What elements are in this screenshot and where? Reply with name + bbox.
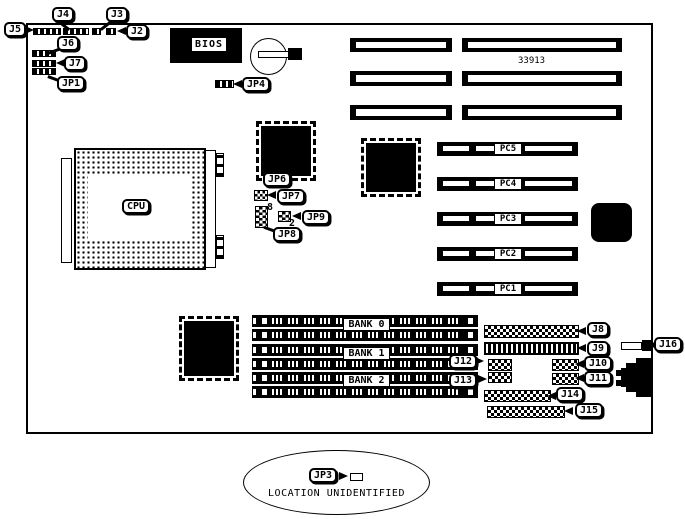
jumper-jp7 — [254, 190, 268, 201]
pci-slot-pc2: PC2 — [437, 247, 578, 261]
label-j7: J7 — [64, 56, 86, 71]
pci-slot-pc3: PC3 — [437, 212, 578, 226]
label-jp8: JP8 — [273, 227, 301, 242]
pointer-jp3 — [339, 472, 348, 480]
label-jp6: JP6 — [263, 172, 291, 187]
pin-header-j8 — [484, 325, 579, 338]
chip-qfp-2 — [366, 143, 416, 192]
bank1-label: BANK 1 — [343, 347, 390, 360]
bank0-label: BANK 0 — [343, 318, 390, 331]
chip-plcc — [591, 203, 632, 242]
pci-slot-pc1: PC1 — [437, 282, 578, 296]
label-jp4: JP4 — [242, 77, 270, 92]
bios-chip: BIOS — [170, 28, 242, 63]
pci-slot-pc5-label: PC5 — [494, 143, 522, 155]
battery-strap — [258, 51, 290, 58]
label-j2: J2 — [126, 24, 148, 39]
board-part-number: 33913 — [518, 56, 545, 66]
pci-slot-pc5: PC5 — [437, 142, 578, 156]
isa-slot-2-right — [462, 71, 622, 86]
pin-header-j5 — [33, 28, 61, 35]
pointer-jp7 — [267, 191, 276, 199]
connector-j16 — [621, 342, 642, 350]
label-j6: J6 — [57, 36, 79, 51]
label-j5: J5 — [4, 22, 26, 37]
keyboard-connector-step — [626, 363, 638, 392]
jp8-pin8-number: 8 — [267, 203, 273, 213]
pointer-j9 — [577, 344, 586, 352]
label-j4: J4 — [52, 7, 74, 22]
pointer-j10 — [575, 360, 584, 368]
label-jp7: JP7 — [277, 189, 305, 204]
chip-qfp-3 — [184, 321, 234, 376]
jumper-jp3 — [350, 473, 363, 481]
label-j14: J14 — [556, 387, 584, 402]
isa-slot-1-left — [350, 38, 452, 52]
location-unidentified-text: LOCATION UNIDENTIFIED — [253, 488, 420, 499]
isa-slot-2-left — [350, 71, 452, 86]
label-j9: J9 — [587, 341, 609, 356]
label-j8: J8 — [587, 322, 609, 337]
label-jp1: JP1 — [57, 76, 85, 91]
pci-slot-pc3-label: PC3 — [494, 213, 522, 225]
cpu-bracket-bottom — [216, 235, 224, 259]
label-j16: J16 — [654, 337, 682, 352]
label-jp9: JP9 — [302, 210, 330, 225]
pin-header-j2 — [106, 28, 116, 35]
cpu-bracket-top — [216, 153, 224, 177]
cpu-label: CPU — [122, 199, 150, 214]
chip-qfp-1 — [261, 126, 311, 176]
pin-header-j12 — [488, 359, 512, 371]
label-j10: J10 — [584, 356, 612, 371]
label-j13: J13 — [449, 373, 477, 388]
isa-slot-3-right — [462, 105, 622, 120]
pin-header-jp1 — [32, 68, 56, 75]
keyboard-connector-pin-top — [616, 370, 622, 376]
cpu-side-bar-left — [61, 158, 72, 263]
pci-slot-pc2-label: PC2 — [494, 248, 522, 260]
label-jp3: JP3 — [309, 468, 337, 483]
keyboard-connector-pin-bottom — [616, 380, 622, 386]
isa-slot-1-right — [462, 38, 622, 52]
pointer-j15 — [564, 407, 573, 415]
pin-header-j15 — [487, 406, 565, 418]
simm-slot-6 — [252, 386, 478, 398]
isa-slot-3-left — [350, 105, 452, 120]
pointer-j14 — [547, 392, 556, 400]
bios-label: BIOS — [191, 37, 227, 52]
pointer-j11 — [575, 374, 584, 382]
label-j12: J12 — [449, 354, 477, 369]
label-j3: J3 — [106, 7, 128, 22]
pointer-jp4 — [233, 80, 242, 88]
keyboard-connector — [636, 358, 652, 397]
motherboard-diagram: J5 J4 J3 J2 J6 J7 JP1 BIOS JP4 33913 CPU… — [0, 0, 685, 519]
pin-header-j7 — [32, 60, 56, 67]
cpu-side-bar-right — [205, 150, 216, 268]
pointer-j2 — [117, 27, 126, 35]
battery-terminal — [288, 48, 302, 60]
pci-slot-pc4: PC4 — [437, 177, 578, 191]
pointer-j5 — [25, 26, 34, 34]
pin-header-jp4 — [215, 80, 234, 88]
pin-header-j13 — [488, 372, 512, 383]
pointer-j8 — [577, 327, 586, 335]
pci-slot-pc1-label: PC1 — [494, 283, 522, 295]
bank2-label: BANK 2 — [343, 374, 390, 387]
pci-slot-pc4-label: PC4 — [494, 178, 522, 190]
connector-j9 — [484, 342, 579, 355]
pin-header-j14 — [484, 390, 551, 402]
callout-ellipse — [243, 450, 430, 515]
label-j11: J11 — [584, 371, 612, 386]
label-j15: J15 — [575, 403, 603, 418]
pointer-j13 — [478, 375, 487, 383]
